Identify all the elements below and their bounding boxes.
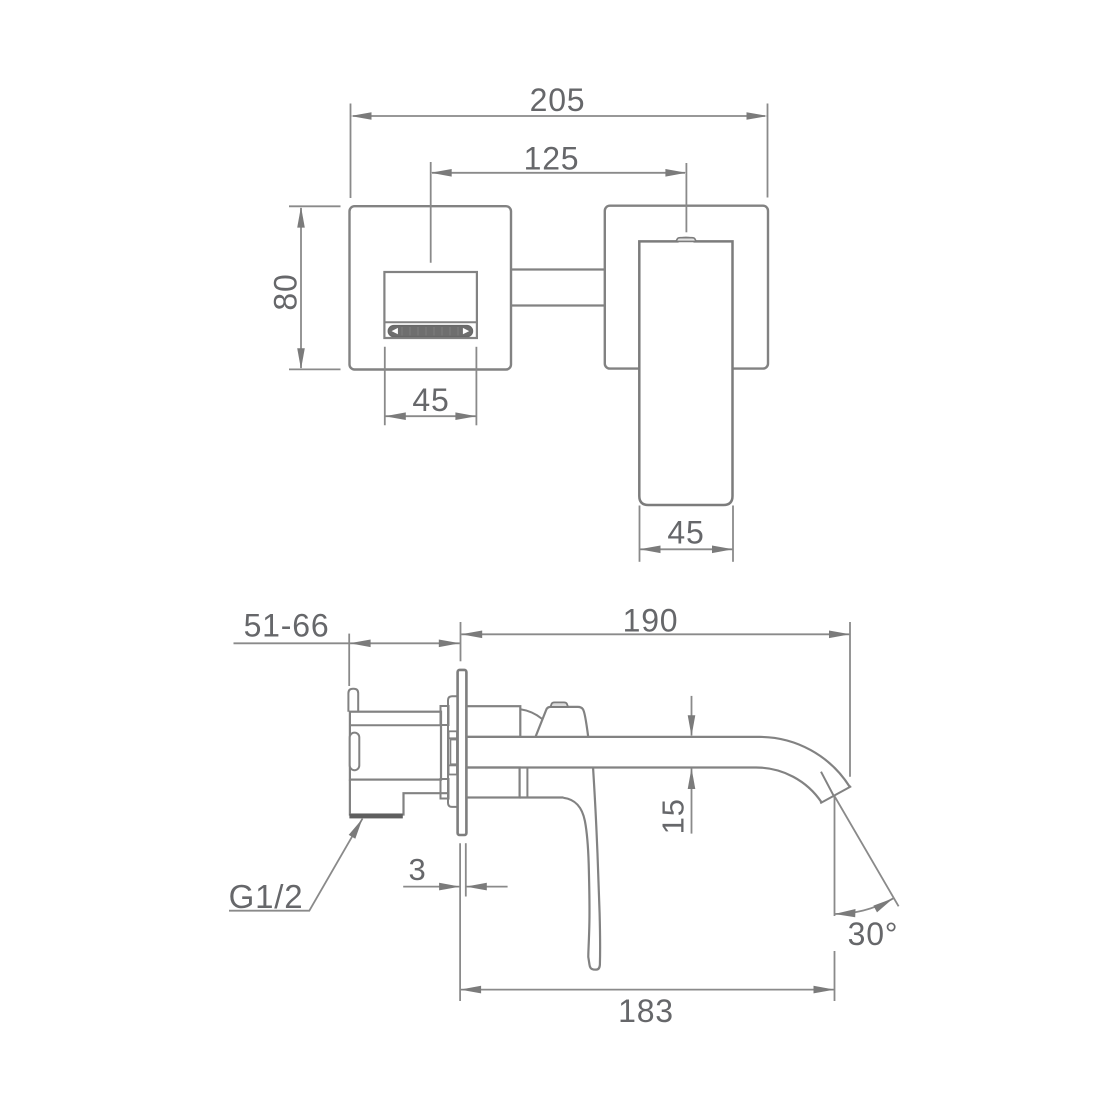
svg-text:15: 15: [656, 798, 691, 834]
svg-text:205: 205: [530, 82, 586, 118]
svg-text:45: 45: [667, 515, 704, 551]
svg-text:3: 3: [408, 852, 426, 887]
svg-text:45: 45: [412, 382, 449, 418]
svg-text:G1/2: G1/2: [229, 878, 304, 915]
svg-text:30°: 30°: [848, 916, 899, 952]
svg-text:190: 190: [623, 603, 679, 639]
svg-text:183: 183: [618, 993, 674, 1029]
svg-text:125: 125: [524, 141, 580, 177]
svg-text:80: 80: [268, 273, 304, 310]
svg-text:51-66: 51-66: [244, 608, 330, 644]
